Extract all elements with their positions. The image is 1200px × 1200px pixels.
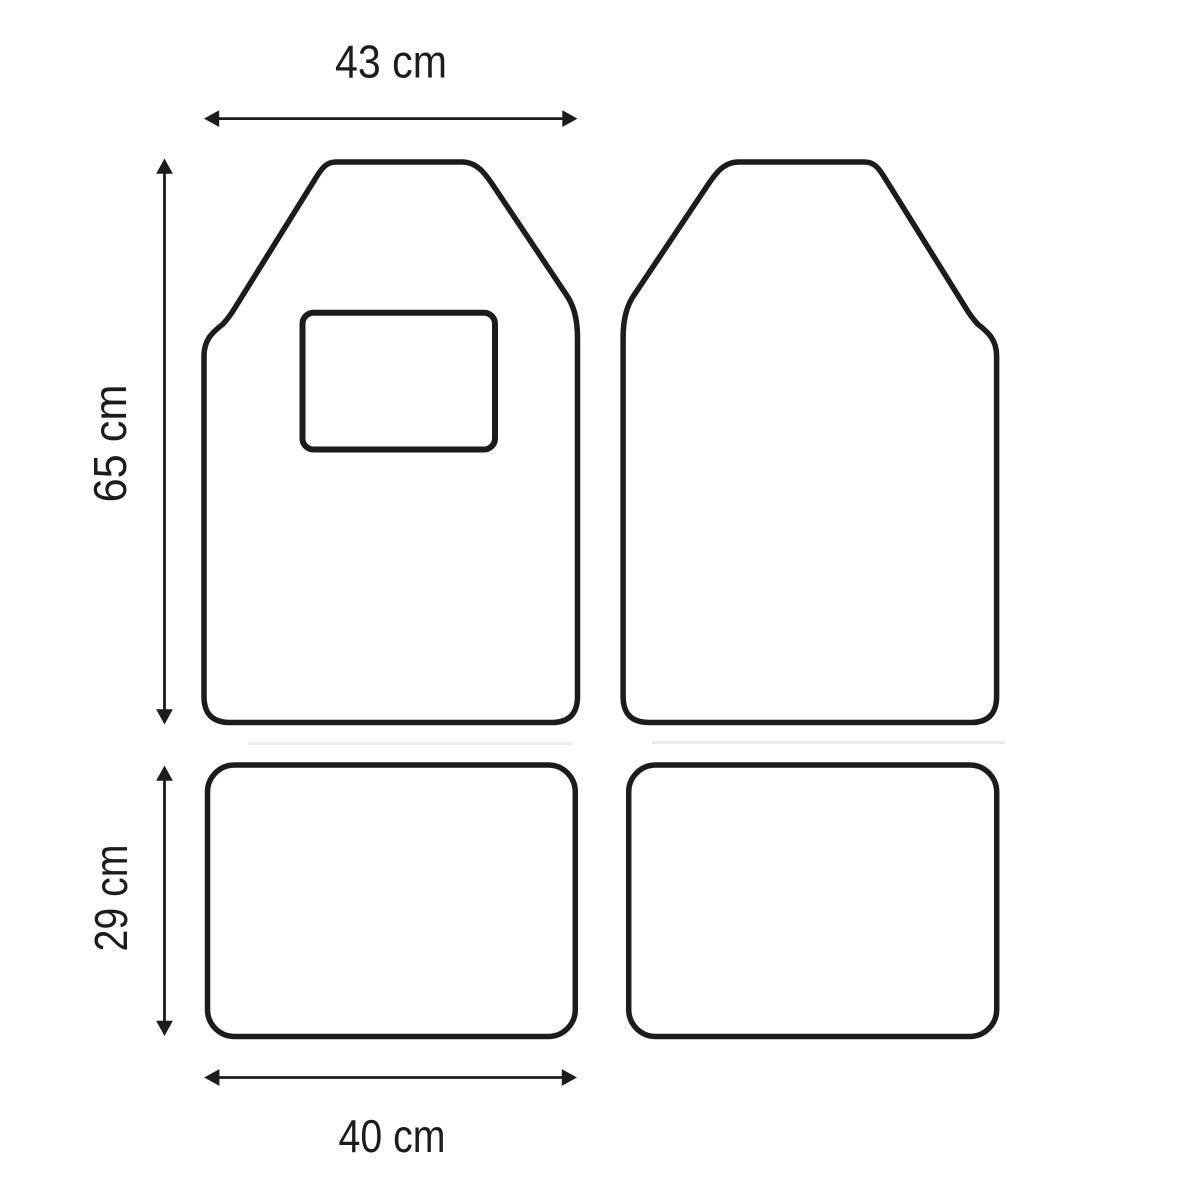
svg-text:40 cm: 40 cm — [339, 1110, 446, 1162]
svg-text:43 cm: 43 cm — [335, 35, 447, 87]
svg-text:29 cm: 29 cm — [85, 845, 137, 952]
svg-text:65 cm: 65 cm — [84, 385, 136, 503]
